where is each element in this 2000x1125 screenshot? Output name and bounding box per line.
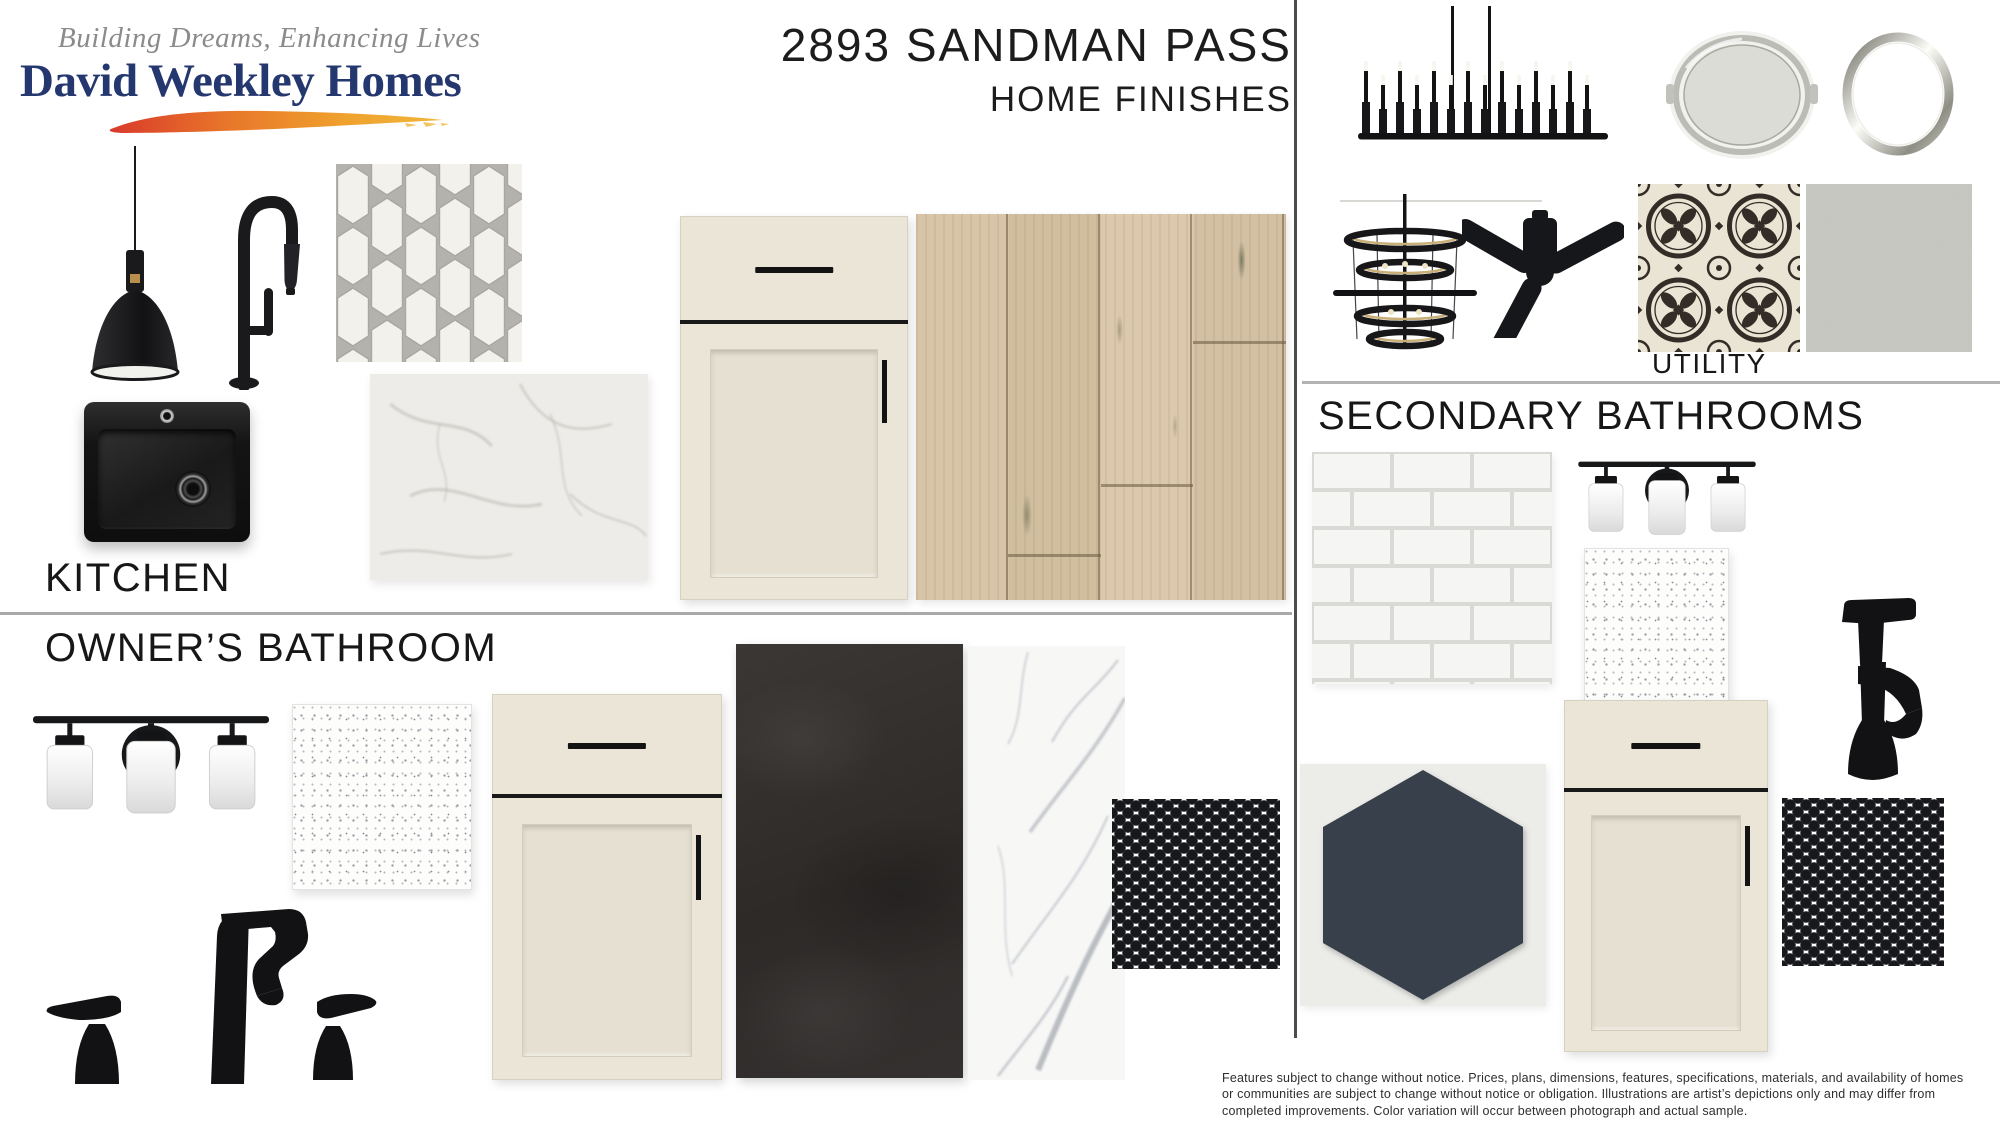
home-finishes-board: Building Dreams, Enhancing Lives David W…	[0, 0, 2000, 1125]
brand-name: David Weekley Homes	[20, 54, 461, 108]
drawer-pull	[1631, 743, 1700, 749]
utility-linear-chandelier-image	[1352, 6, 1614, 168]
board-title: 2893 SANDMAN PASS	[690, 18, 1292, 72]
door-pull	[882, 360, 887, 424]
kitchen-quartz-countertop-image	[370, 374, 648, 580]
kitchen-faucet-image	[214, 176, 306, 390]
kitchen-label: KITCHEN	[45, 556, 231, 601]
secondary-bathrooms-label: SECONDARY BATHROOMS	[1318, 394, 1864, 439]
brand-brush-swoosh-icon	[105, 107, 450, 137]
sink-bowl	[98, 429, 236, 529]
sink-faucet-hole	[160, 409, 174, 423]
cabinet-door-front	[680, 324, 908, 600]
cabinet-door-panel	[1591, 815, 1742, 1031]
vertical-divider	[1294, 0, 1297, 1038]
title-block: 2893 SANDMAN PASS HOME FINISHES	[690, 18, 1292, 120]
utility-ceiling-fan-image	[1462, 206, 1624, 338]
cabinet-door-front	[1564, 792, 1768, 1052]
owners-bath-quartz-swatch-image	[292, 704, 472, 890]
plank-joint	[1008, 554, 1101, 557]
disclaimer-text: Features subject to change without notic…	[1222, 1070, 1974, 1120]
owners-bath-penny-tile-image	[1112, 799, 1280, 969]
utility-paint-can-swatch-image	[1666, 28, 1818, 162]
cabinet-drawer-front	[1564, 700, 1768, 792]
kitchen-owners-divider	[0, 612, 1292, 615]
kitchen-picket-mosaic-tile-image	[336, 164, 522, 362]
utility-drum-chandelier-image	[1327, 194, 1483, 360]
utility-patterned-tile-image	[1638, 184, 1800, 352]
door-pull	[696, 835, 701, 900]
owners-bath-widespread-faucet-image	[45, 896, 377, 1084]
sink-drain	[175, 471, 211, 507]
plank-joint	[1193, 341, 1286, 344]
secondary-bath-penny-tile-image	[1782, 798, 1944, 966]
drawer-pull	[568, 743, 646, 749]
owners-bath-vanity-light-image	[30, 704, 272, 817]
secondary-bath-vanity-light-image	[1576, 452, 1758, 538]
wood-flooring-sample-image	[916, 214, 1286, 600]
door-pull	[1745, 826, 1750, 886]
cabinet-door-front	[492, 798, 722, 1080]
secondary-bath-quartz-swatch-image	[1584, 548, 1729, 702]
owners-bathroom-label: OWNER’S BATHROOM	[45, 626, 497, 671]
cabinet-drawer-front	[492, 694, 722, 798]
secondary-bath-subway-tile-image	[1312, 452, 1552, 684]
utility-label: UTILITY	[1652, 348, 1767, 380]
owners-bath-vanity-cabinet-image	[492, 694, 722, 1080]
kitchen-cabinet-sample-image	[680, 216, 908, 600]
owners-bath-charcoal-tile-image	[736, 644, 963, 1078]
board-subtitle: HOME FINISHES	[690, 80, 1292, 120]
secondary-bath-faucet-image	[1824, 592, 1924, 784]
cabinet-door-panel	[710, 349, 879, 578]
brand-tagline: Building Dreams, Enhancing Lives	[58, 22, 481, 55]
kitchen-pendant-light-image	[80, 146, 190, 388]
secondary-bath-vanity-cabinet-image	[1564, 700, 1768, 1052]
drawer-pull	[755, 267, 833, 273]
secondary-bath-hex-tile-image	[1300, 764, 1546, 1006]
utility-metal-ring-swatch-image	[1838, 30, 1958, 158]
utility-gray-texture-swatch-image	[1806, 184, 1972, 352]
owners-bath-marble-tile-image	[968, 646, 1125, 1080]
plank-joint	[1101, 484, 1193, 487]
utility-secondary-divider	[1302, 381, 2000, 384]
cabinet-door-panel	[522, 824, 692, 1058]
kitchen-sink-image	[84, 402, 250, 542]
cabinet-drawer-front	[680, 216, 908, 324]
